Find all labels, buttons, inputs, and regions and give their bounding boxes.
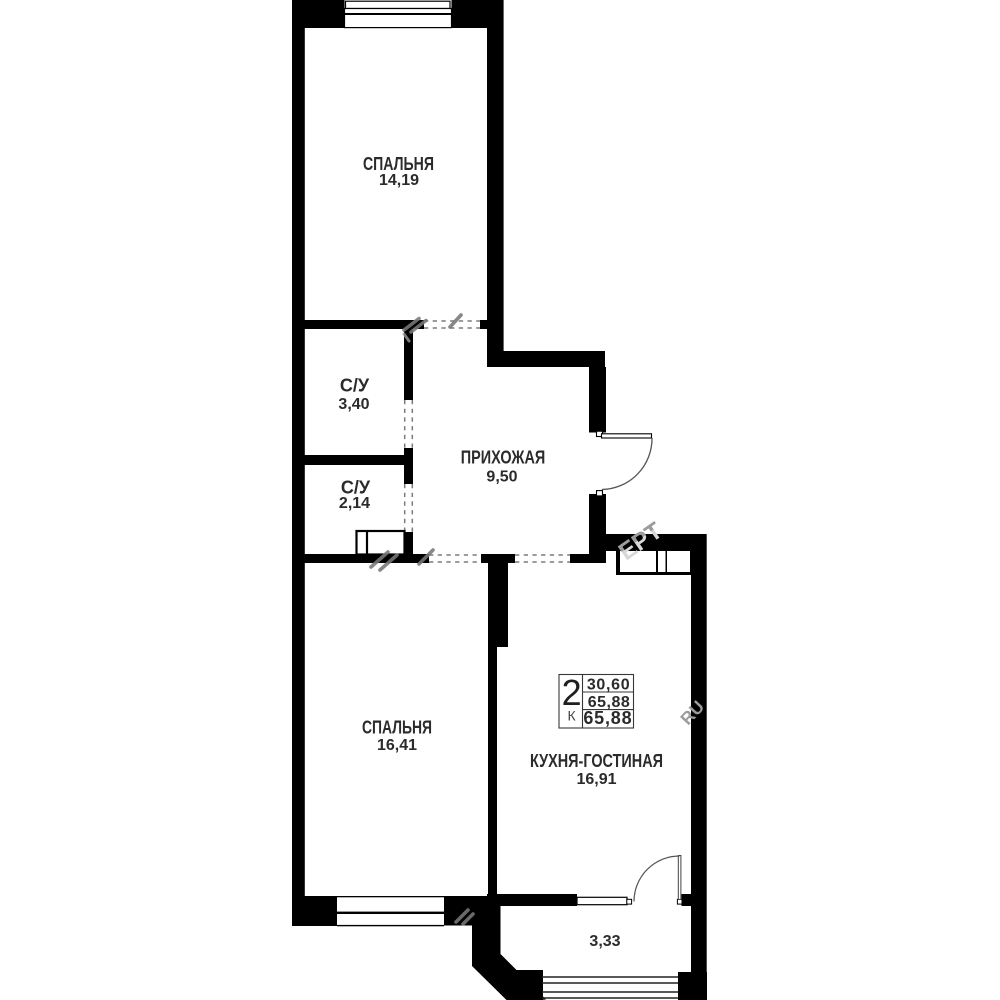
svg-text:9,50: 9,50: [486, 469, 517, 486]
svg-text:30,60: 30,60: [587, 677, 631, 694]
svg-text:СПАЛЬНЯ: СПАЛЬНЯ: [362, 718, 432, 738]
svg-text:КУХНЯ-ГОСТИНАЯ: КУХНЯ-ГОСТИНАЯ: [530, 751, 663, 771]
svg-text:16,41: 16,41: [377, 737, 417, 754]
svg-text:14,19: 14,19: [379, 172, 419, 189]
svg-text:65,88: 65,88: [583, 708, 632, 728]
svg-text:СПАЛЬНЯ: СПАЛЬНЯ: [363, 154, 434, 174]
svg-text:3,40: 3,40: [338, 396, 369, 413]
svg-text:16,91: 16,91: [576, 771, 616, 788]
svg-text:К: К: [568, 708, 577, 724]
svg-text:2,14: 2,14: [339, 495, 370, 512]
svg-text:С/У: С/У: [340, 376, 370, 396]
svg-text:3,33: 3,33: [589, 933, 620, 950]
svg-text:ПРИХОЖАЯ: ПРИХОЖАЯ: [461, 448, 546, 468]
